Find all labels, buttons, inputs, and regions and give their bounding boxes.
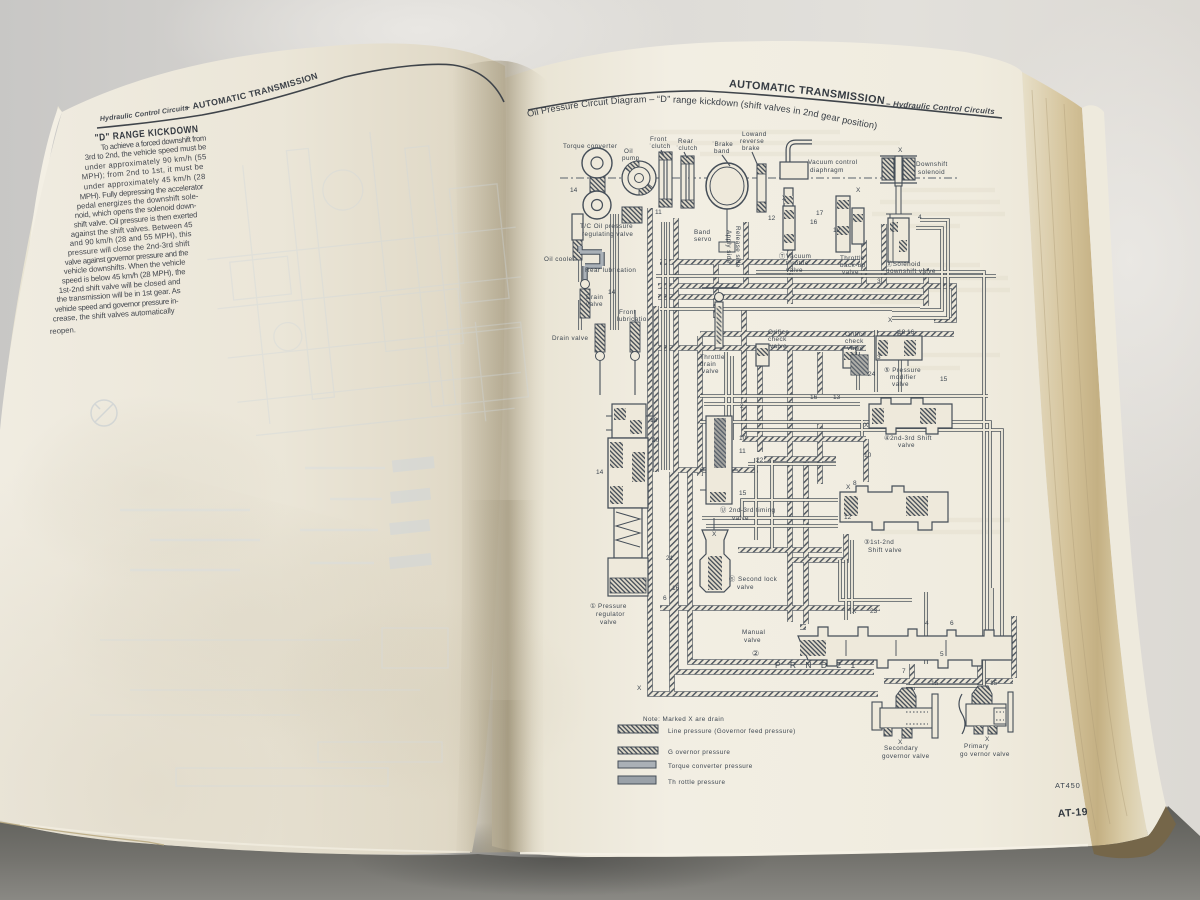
svg-text:③1st-2nd: ③1st-2nd bbox=[864, 539, 894, 546]
svg-text:Pressure: Pressure bbox=[598, 603, 627, 610]
svg-text:valve: valve bbox=[892, 381, 909, 388]
svg-text:check: check bbox=[768, 336, 787, 343]
svg-text:valve: valve bbox=[842, 269, 859, 276]
svg-text:④2nd-3rd Shift: ④2nd-3rd Shift bbox=[884, 435, 932, 442]
svg-text:X: X bbox=[898, 739, 903, 746]
svg-text:15: 15 bbox=[940, 376, 948, 383]
svg-text:Vacuum control: Vacuum control bbox=[808, 159, 858, 166]
svg-text:16: 16 bbox=[672, 585, 680, 592]
svg-text:T/C Oil pressure: T/C Oil pressure bbox=[580, 223, 633, 230]
svg-text:3: 3 bbox=[877, 354, 881, 361]
svg-text:ⓍSolenoid: ⓍSolenoid bbox=[886, 260, 921, 268]
svg-text:ˈclutch: ˈclutch bbox=[649, 142, 671, 150]
svg-text:Release side: Release side bbox=[734, 226, 741, 268]
svg-text:②: ② bbox=[752, 649, 759, 658]
svg-text:X: X bbox=[846, 484, 851, 491]
svg-text:10: 10 bbox=[864, 452, 872, 459]
svg-text:valve: valve bbox=[737, 584, 754, 591]
svg-text:ˈBrake: ˈBrake bbox=[712, 140, 733, 148]
svg-text:X: X bbox=[852, 608, 857, 615]
svg-text:Front: Front bbox=[650, 136, 667, 143]
svg-text:X: X bbox=[888, 317, 893, 324]
svg-text:4: 4 bbox=[918, 214, 922, 221]
svg-text:valve: valve bbox=[847, 345, 864, 352]
svg-text:AT450: AT450 bbox=[1055, 781, 1081, 790]
svg-text:servo: servo bbox=[694, 236, 712, 243]
svg-text:X: X bbox=[712, 531, 717, 538]
svg-text:6: 6 bbox=[663, 595, 667, 602]
svg-text:regulating valve: regulating valve bbox=[582, 231, 633, 238]
svg-text:Line pressure (Governor feed p: Line pressure (Governor feed pressure) bbox=[668, 728, 796, 735]
svg-text:G overnor pressure: G overnor pressure bbox=[668, 749, 730, 756]
svg-text:Rear: Rear bbox=[678, 138, 693, 145]
svg-text:18: 18 bbox=[650, 417, 658, 424]
svg-text:Band: Band bbox=[694, 229, 711, 236]
svg-text:brake: brake bbox=[742, 145, 760, 152]
svg-text:Downshift: Downshift bbox=[916, 161, 948, 168]
svg-text:2: 2 bbox=[740, 403, 744, 410]
svg-text:Throttle: Throttle bbox=[840, 255, 865, 262]
svg-text:12: 12 bbox=[833, 227, 841, 234]
svg-text:band: band bbox=[714, 148, 730, 155]
svg-text:check: check bbox=[845, 338, 864, 345]
svg-text:go vernor valve: go vernor valve bbox=[960, 751, 1010, 758]
svg-text:Shift valve: Shift valve bbox=[868, 547, 902, 554]
svg-text:11: 11 bbox=[655, 209, 662, 216]
svg-text:X: X bbox=[864, 422, 869, 429]
svg-text:throttle: throttle bbox=[786, 260, 809, 267]
svg-text:14: 14 bbox=[596, 469, 604, 476]
svg-text:Note: Marked X are drain: Note: Marked X are drain bbox=[643, 716, 724, 723]
svg-text:valve: valve bbox=[600, 619, 617, 626]
svg-text:Vacuum: Vacuum bbox=[786, 253, 811, 260]
svg-text:15: 15 bbox=[931, 680, 939, 687]
svg-text:pump: pump bbox=[622, 155, 640, 162]
svg-text:7: 7 bbox=[902, 668, 906, 675]
svg-text:10: 10 bbox=[739, 435, 747, 442]
svg-text:X: X bbox=[637, 685, 642, 692]
svg-text:Orifice: Orifice bbox=[845, 331, 866, 338]
svg-text:Torque converter: Torque converter bbox=[563, 143, 617, 150]
svg-text:ˈclutch: ˈclutch bbox=[676, 144, 698, 152]
svg-text:lubricatio: lubricatio bbox=[617, 316, 647, 323]
svg-text:valve: valve bbox=[770, 343, 787, 350]
svg-text:P R N D 2 1: P R N D 2 1 bbox=[775, 660, 859, 670]
svg-text:11: 11 bbox=[739, 448, 746, 455]
svg-text:①: ① bbox=[590, 603, 596, 610]
svg-text:X: X bbox=[782, 195, 787, 202]
svg-text:Rear lubrication: Rear lubrication bbox=[585, 267, 636, 274]
svg-text:Drain: Drain bbox=[586, 294, 603, 301]
svg-text:Ⓢ Second lock: Ⓢ Second lock bbox=[729, 575, 778, 583]
svg-text:23: 23 bbox=[870, 608, 878, 615]
svg-text:14: 14 bbox=[570, 187, 578, 194]
svg-text:Ⓤ 2nd-3rd timing: Ⓤ 2nd-3rd timing bbox=[720, 506, 776, 514]
svg-text:valve: valve bbox=[744, 637, 761, 644]
svg-text:13: 13 bbox=[833, 394, 841, 401]
svg-text:21: 21 bbox=[666, 555, 674, 562]
svg-text:reverse: reverse bbox=[740, 138, 764, 145]
svg-text:18 16: 18 16 bbox=[898, 329, 915, 336]
svg-text:X: X bbox=[856, 187, 861, 194]
svg-text:⑤ Pressure: ⑤ Pressure bbox=[884, 367, 921, 374]
svg-text:16: 16 bbox=[810, 394, 818, 401]
svg-text:15: 15 bbox=[990, 680, 998, 687]
svg-text:22: 22 bbox=[756, 457, 764, 464]
svg-text:Throttle: Throttle bbox=[700, 354, 725, 361]
svg-text:X: X bbox=[898, 147, 903, 154]
svg-text:back-up: back-up bbox=[840, 262, 866, 269]
svg-text:8: 8 bbox=[853, 480, 857, 487]
svg-text:12: 12 bbox=[844, 514, 852, 521]
svg-text:Th rottle pressure: Th rottle pressure bbox=[668, 779, 725, 786]
svg-text:valve: valve bbox=[586, 301, 603, 308]
svg-text:Torque converter pressure: Torque converter pressure bbox=[668, 763, 753, 770]
svg-text:Oil cooler: Oil cooler bbox=[544, 256, 575, 263]
svg-text:12: 12 bbox=[768, 215, 776, 222]
svg-text:valve: valve bbox=[898, 442, 915, 449]
svg-text:Secondary: Secondary bbox=[884, 745, 919, 752]
svg-text:valve: valve bbox=[732, 515, 749, 522]
svg-text:modifier: modifier bbox=[890, 374, 916, 381]
svg-text:Oil: Oil bbox=[624, 148, 633, 155]
svg-text:Orifice: Orifice bbox=[768, 329, 789, 336]
svg-text:3: 3 bbox=[877, 278, 881, 285]
svg-text:reopen.: reopen. bbox=[50, 325, 77, 336]
svg-text:20: 20 bbox=[652, 437, 660, 444]
svg-text:Lowand: Lowand bbox=[742, 131, 767, 138]
svg-text:valve: valve bbox=[702, 368, 719, 375]
svg-text:X: X bbox=[985, 736, 990, 743]
svg-text:6: 6 bbox=[700, 467, 704, 474]
svg-text:15: 15 bbox=[739, 490, 747, 497]
svg-text:24: 24 bbox=[868, 371, 876, 378]
svg-text:4: 4 bbox=[925, 620, 929, 627]
svg-text:14: 14 bbox=[608, 289, 616, 296]
svg-text:Apply side: Apply side bbox=[725, 230, 732, 264]
svg-text:Drain valve: Drain valve bbox=[552, 335, 588, 342]
svg-text:drain: drain bbox=[700, 361, 716, 368]
svg-text:6: 6 bbox=[950, 620, 954, 627]
svg-text:5: 5 bbox=[940, 651, 944, 658]
svg-text:Primary: Primary bbox=[964, 743, 989, 750]
svg-text:AT-19: AT-19 bbox=[1057, 806, 1088, 820]
svg-text:Front: Front bbox=[619, 309, 636, 316]
svg-text:16: 16 bbox=[810, 219, 818, 226]
svg-text:valve: valve bbox=[786, 267, 803, 274]
svg-text:Ⓣ: Ⓣ bbox=[779, 252, 786, 260]
svg-text:17: 17 bbox=[816, 210, 824, 217]
svg-text:diaphragm: diaphragm bbox=[810, 167, 844, 174]
svg-text:solenoid: solenoid bbox=[918, 169, 945, 176]
svg-text:Manual: Manual bbox=[742, 629, 765, 636]
svg-text:downshift valve: downshift valve bbox=[886, 268, 936, 275]
svg-text:governor valve: governor valve bbox=[882, 753, 930, 760]
svg-text:regulator: regulator bbox=[596, 611, 625, 618]
